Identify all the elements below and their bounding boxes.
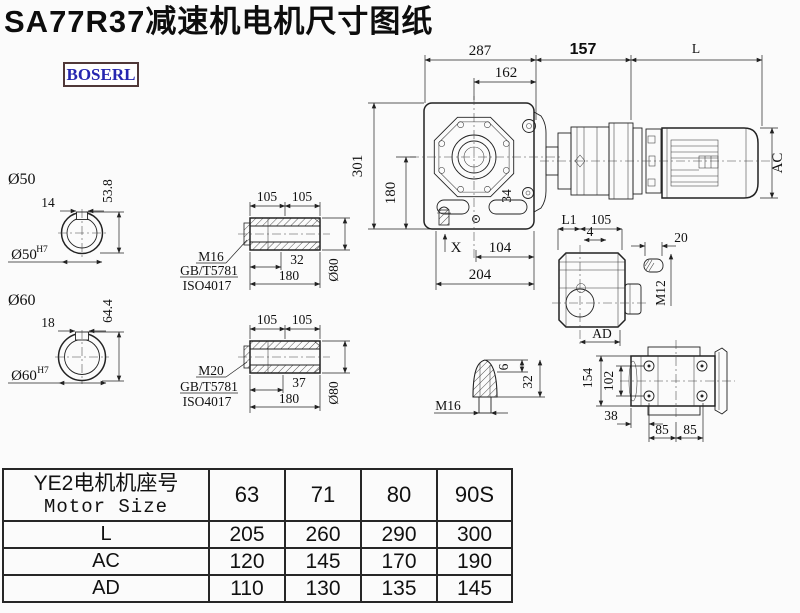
shaft20-std2: ISO4017 (183, 394, 232, 409)
dim-180-main: 180 (383, 182, 399, 205)
dim-204: 204 (469, 267, 492, 283)
motor-dimension-table: YE2电机机座号 Motor Size 63 71 80 90S L 205 2… (2, 468, 513, 603)
col-71: 71 (285, 469, 361, 521)
table-cell: 260 (285, 521, 361, 548)
table-cell: 120 (209, 548, 285, 575)
shaftend-thread-M16: M16 (435, 398, 461, 413)
table-cell: 135 (361, 575, 437, 602)
dim-L: L (692, 41, 700, 56)
main-view-motor (540, 128, 778, 198)
row-label-AD: AD (3, 575, 209, 602)
hollow-shaft-m16: 105 105 32 180 Ø80 M16 GB/T5781 ISO4017 (180, 189, 350, 293)
shaft20-bolt: M20 (198, 363, 224, 378)
table-row: AC 120 145 170 190 (3, 548, 512, 575)
dim-287: 287 (469, 43, 492, 59)
motor-size-header-cell: YE2电机机座号 Motor Size (3, 469, 209, 521)
dim-104: 104 (489, 240, 512, 256)
bore60-key-width: 18 (41, 315, 55, 330)
label-X: X (451, 240, 462, 256)
bore60-key-depth: 64.4 (100, 299, 115, 323)
table-row: L 205 260 290 300 (3, 521, 512, 548)
bore50-bore: Ø50 (11, 247, 37, 263)
bore50-title: Ø50 (8, 171, 36, 188)
bore60-title: Ø60 (8, 292, 36, 309)
table-cell: 205 (209, 521, 285, 548)
shaft20-dim-105a: 105 (257, 312, 278, 327)
dim-162: 162 (495, 65, 518, 81)
sideview-dim-AD: AD (592, 326, 612, 341)
col-80: 80 (361, 469, 437, 521)
key-thread-M12: M12 (653, 280, 668, 306)
table-cell: 300 (437, 521, 512, 548)
shaft16-dim-len: 32 (290, 252, 304, 267)
bore-detail-50: Ø50 14 53.8 Ø50 H7 (8, 171, 124, 263)
shaftend-dim-6: 6 (496, 363, 511, 370)
table-cell: 145 (437, 575, 512, 602)
shaft-end-detail: M16 6 32 (434, 360, 545, 413)
shaft20-std1: GB/T5781 (180, 379, 238, 394)
header-en: Motor Size (4, 496, 208, 518)
header-cn: YE2电机机座号 (4, 472, 208, 496)
main-view-gearbox (410, 96, 562, 258)
dim-AC: AC (770, 153, 786, 174)
output-flange-view: 154 102 38 85 85 (580, 340, 735, 442)
gearbox-side-view: L1 105 4 AD (552, 212, 648, 346)
sideview-dim-105: 105 (591, 212, 612, 227)
table-cell: 170 (361, 548, 437, 575)
flange-dim-85b: 85 (683, 422, 697, 437)
dim-301: 301 (350, 155, 366, 178)
col-63: 63 (209, 469, 285, 521)
technical-drawing: 287 162 157 L AC 301 180 34 X 104 (0, 0, 800, 465)
flange-dim-102: 102 (601, 371, 616, 391)
table-cell: 145 (285, 548, 361, 575)
bore-detail-60: Ø60 18 64.4 Ø60 H7 (8, 292, 124, 384)
bore50-tol: H7 (36, 245, 48, 255)
shaft16-bolt: M16 (198, 249, 224, 264)
shaft20-dim-len: 37 (292, 375, 306, 390)
hollow-shaft-m20: 105 105 37 180 Ø80 M20 GB/T5781 ISO4017 (180, 312, 350, 413)
table-cell: 110 (209, 575, 285, 602)
dim-157: 157 (570, 41, 597, 58)
shaft16-dim-180: 180 (279, 268, 300, 283)
dim-34: 34 (499, 189, 514, 203)
bore50-key-width: 14 (41, 195, 55, 210)
bore60-tol: H7 (37, 366, 49, 376)
bore50-key-depth: 53.8 (100, 179, 115, 203)
table-header-row: YE2电机机座号 Motor Size 63 71 80 90S (3, 469, 512, 521)
row-label-AC: AC (3, 548, 209, 575)
shaft16-dim-105b: 105 (292, 189, 313, 204)
sideview-dim-L1: L1 (562, 212, 577, 227)
key-detail: 20 M12 (631, 230, 688, 306)
shaft16-dim-105a: 105 (257, 189, 278, 204)
shaft16-std2: ISO4017 (183, 278, 232, 293)
drawing-sheet: SA77R37减速机电机尺寸图纸 BOSERL (0, 0, 800, 613)
shaft16-dim-dia: Ø80 (326, 258, 341, 281)
sideview-dim-4: 4 (587, 224, 594, 239)
bore60-bore: Ø60 (11, 368, 37, 384)
shaft20-dim-180: 180 (279, 391, 300, 406)
col-90S: 90S (437, 469, 512, 521)
shaft20-dim-105b: 105 (292, 312, 313, 327)
row-label-L: L (3, 521, 209, 548)
shaft16-std1: GB/T5781 (180, 263, 238, 278)
table-cell: 190 (437, 548, 512, 575)
shaft20-dim-dia: Ø80 (326, 381, 341, 404)
table-row: AD 110 130 135 145 (3, 575, 512, 602)
shaftend-dim-32: 32 (520, 375, 535, 389)
flange-dim-154: 154 (580, 368, 595, 389)
table-cell: 290 (361, 521, 437, 548)
flange-dim-85a: 85 (655, 422, 669, 437)
flange-dim-38: 38 (604, 408, 618, 423)
key-dim-20: 20 (674, 230, 688, 245)
table-cell: 130 (285, 575, 361, 602)
